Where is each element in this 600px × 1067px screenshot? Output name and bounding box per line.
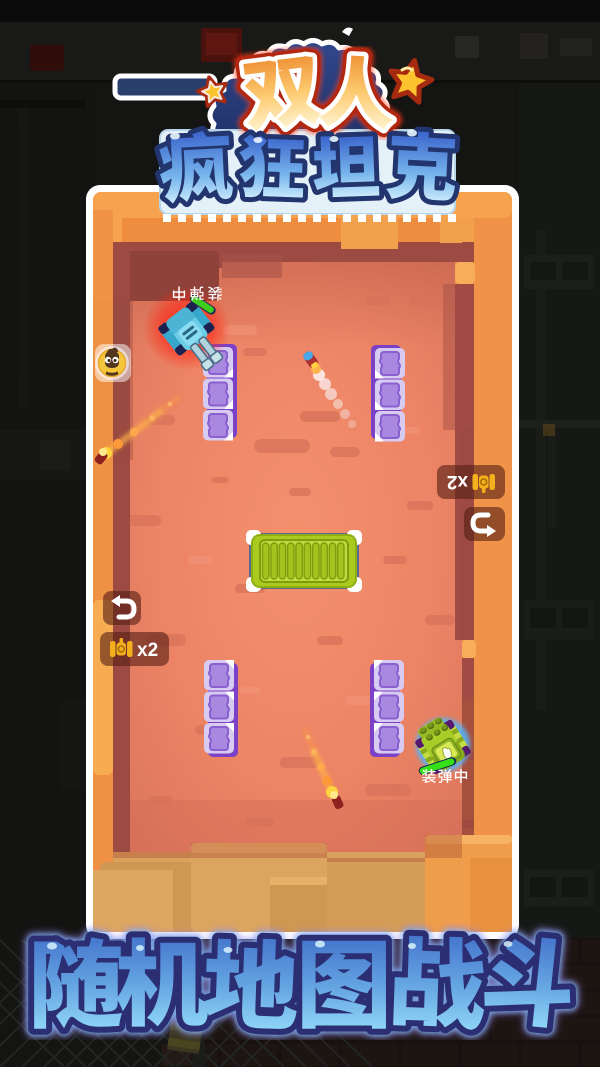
svg-text:x2: x2 xyxy=(137,640,158,661)
svg-text:x2: x2 xyxy=(447,471,468,492)
